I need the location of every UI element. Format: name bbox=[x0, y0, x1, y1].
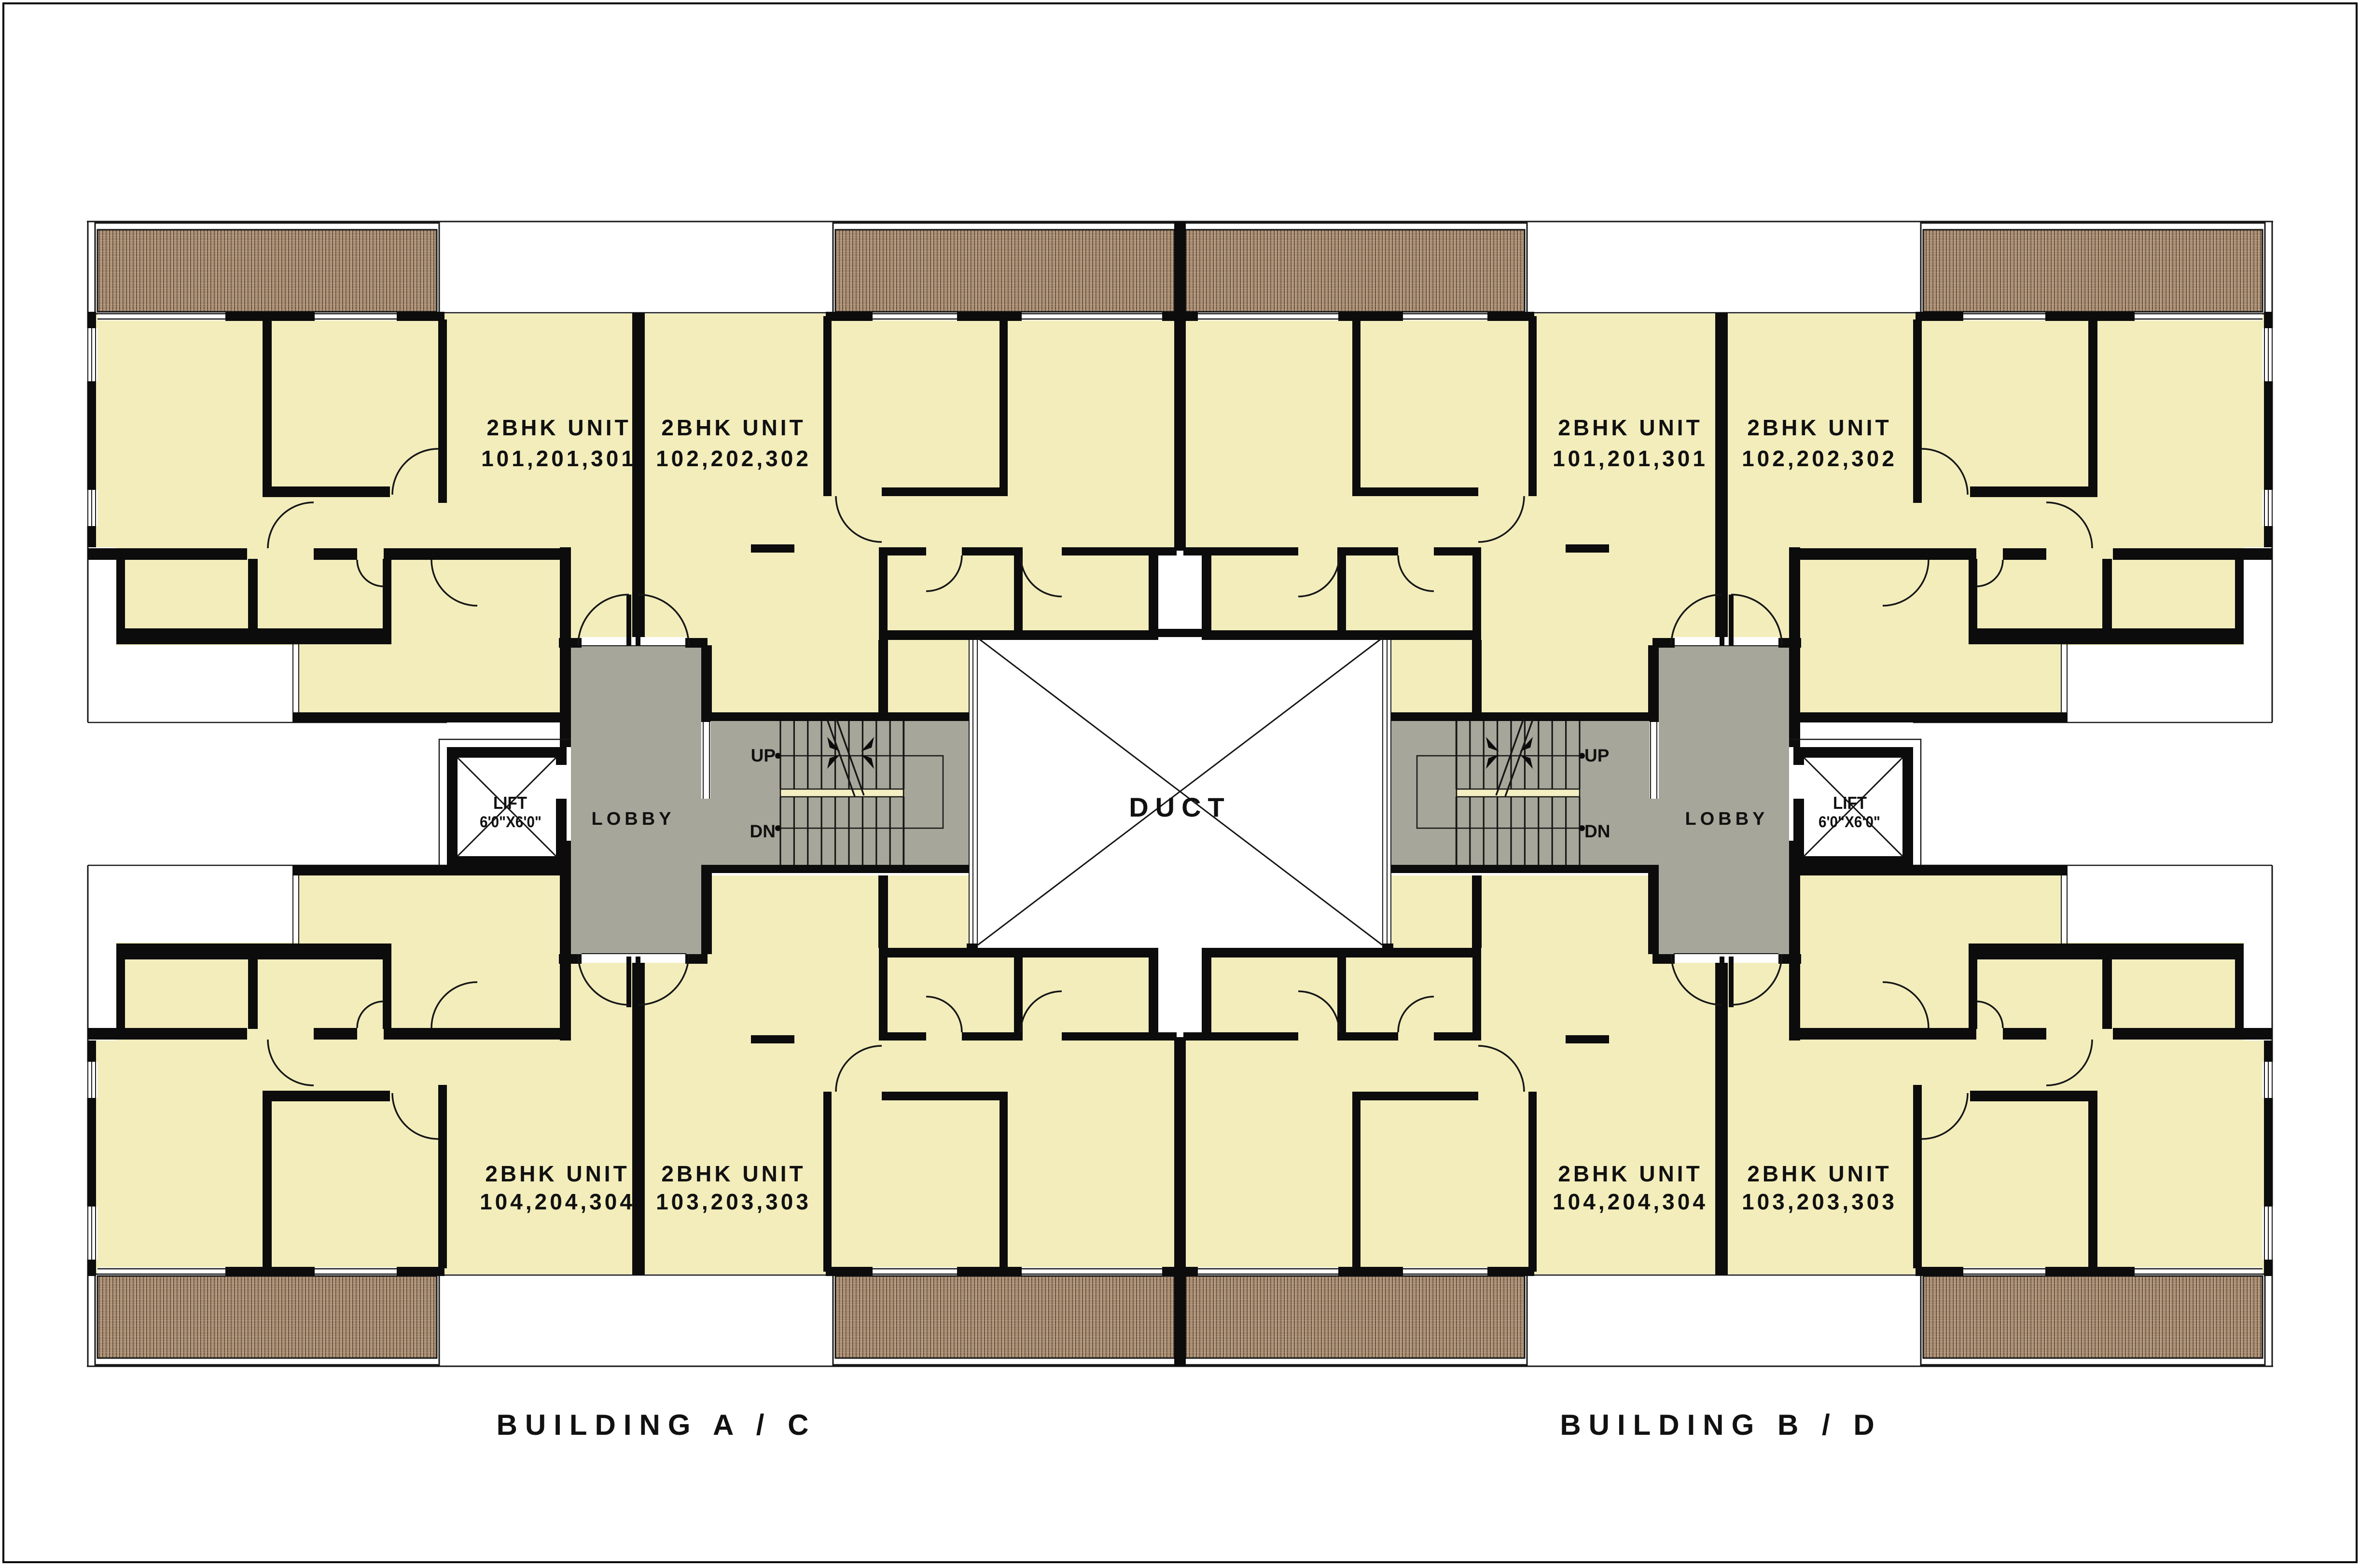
svg-text:101,201,301: 101,201,301 bbox=[1553, 446, 1708, 471]
svg-text:LOBBY: LOBBY bbox=[592, 809, 675, 829]
svg-text:104,204,304: 104,204,304 bbox=[1553, 1189, 1708, 1214]
svg-text:103,203,303: 103,203,303 bbox=[656, 1189, 811, 1214]
svg-text:2BHK UNIT: 2BHK UNIT bbox=[661, 415, 805, 440]
svg-text:LOBBY: LOBBY bbox=[1685, 809, 1769, 829]
svg-text:UP: UP bbox=[751, 746, 776, 765]
svg-text:2BHK UNIT: 2BHK UNIT bbox=[1558, 415, 1702, 440]
svg-text:104,204,304: 104,204,304 bbox=[480, 1189, 635, 1214]
svg-text:6'0"X6'0": 6'0"X6'0" bbox=[1819, 813, 1880, 831]
svg-text:2BHK UNIT: 2BHK UNIT bbox=[1747, 415, 1891, 440]
svg-text:6'0"X6'0": 6'0"X6'0" bbox=[480, 813, 541, 831]
svg-text:102,202,302: 102,202,302 bbox=[656, 446, 811, 471]
svg-text:103,203,303: 103,203,303 bbox=[1742, 1189, 1897, 1214]
svg-text:DUCT: DUCT bbox=[1129, 792, 1231, 822]
svg-text:2BHK UNIT: 2BHK UNIT bbox=[1747, 1161, 1891, 1186]
svg-text:102,202,302: 102,202,302 bbox=[1742, 446, 1897, 471]
svg-text:BUILDING A / C: BUILDING A / C bbox=[497, 1409, 817, 1441]
svg-text:DN: DN bbox=[1584, 821, 1610, 841]
svg-text:2BHK UNIT: 2BHK UNIT bbox=[1558, 1161, 1702, 1186]
svg-text:LIFT: LIFT bbox=[1833, 793, 1867, 813]
svg-text:2BHK UNIT: 2BHK UNIT bbox=[661, 1161, 805, 1186]
svg-text:2BHK UNIT: 2BHK UNIT bbox=[485, 1161, 629, 1186]
svg-text:2BHK UNIT: 2BHK UNIT bbox=[486, 415, 631, 440]
svg-text:101,201,301: 101,201,301 bbox=[481, 446, 637, 471]
svg-text:UP: UP bbox=[1584, 746, 1609, 765]
svg-text:LIFT: LIFT bbox=[493, 793, 527, 813]
svg-text:DN: DN bbox=[750, 821, 776, 841]
svg-text:BUILDING B / D: BUILDING B / D bbox=[1560, 1409, 1882, 1441]
